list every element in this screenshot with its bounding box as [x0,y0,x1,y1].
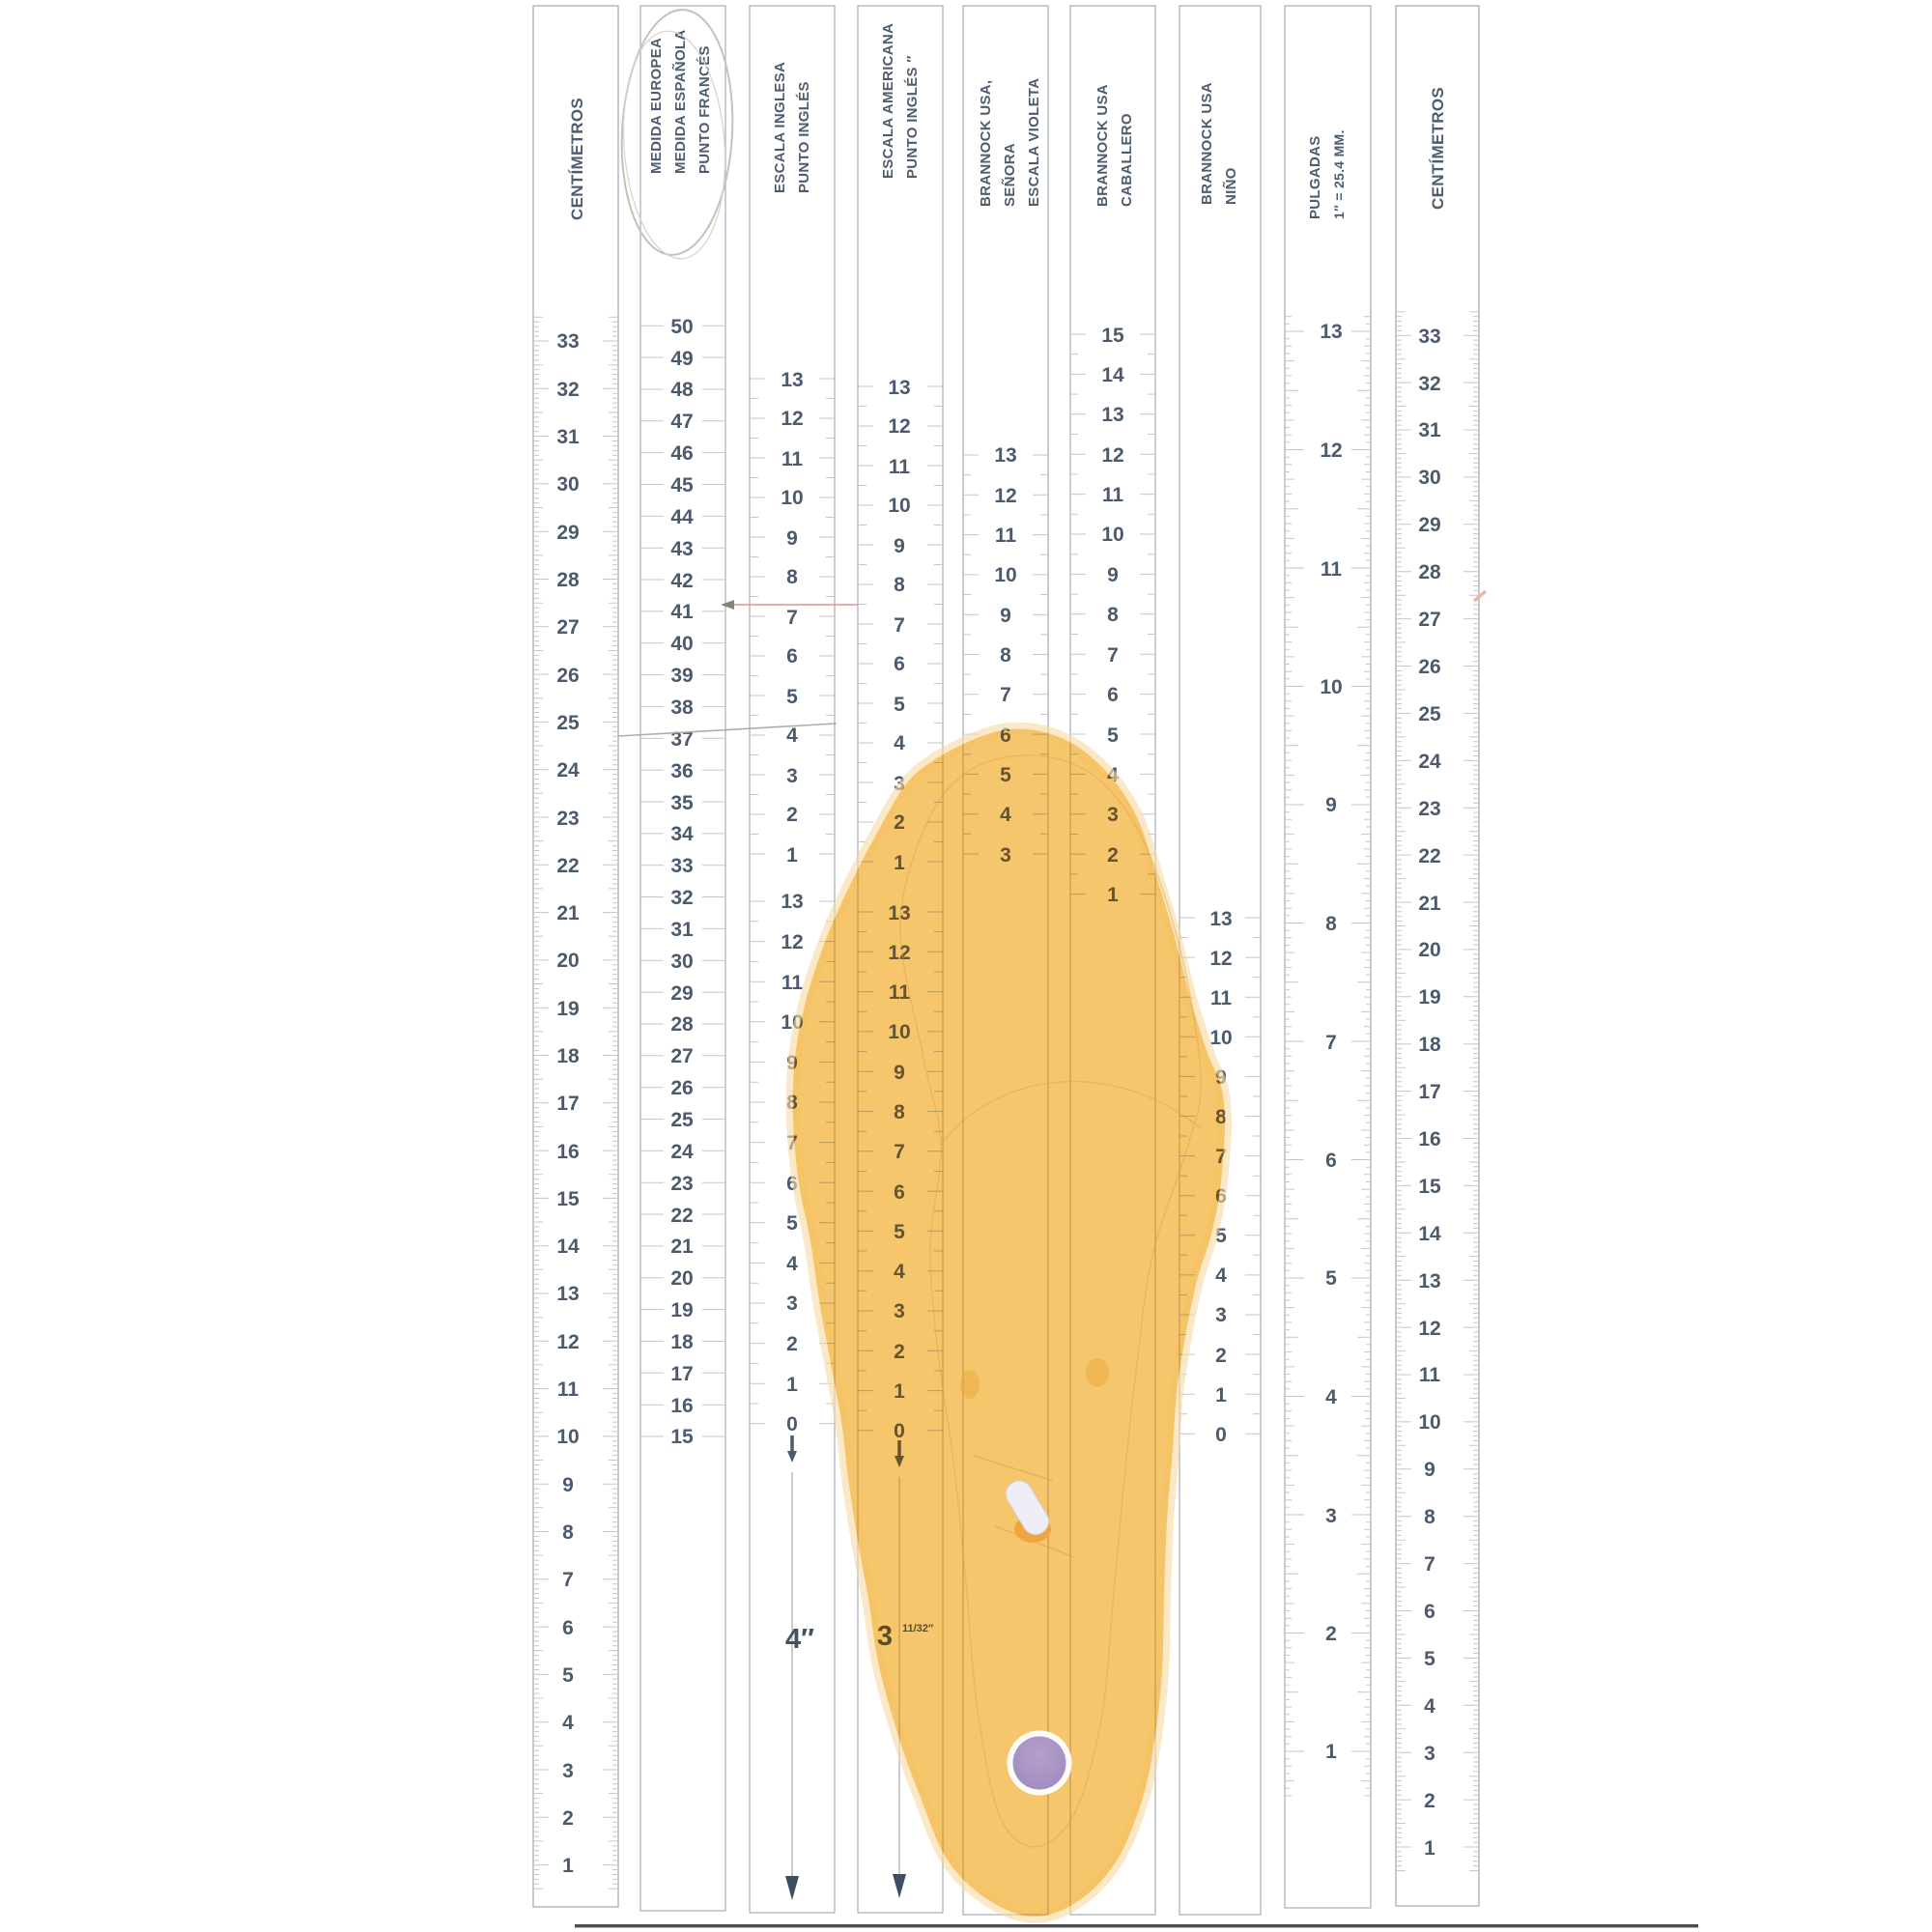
svg-text:13: 13 [556,1283,579,1305]
svg-text:6: 6 [894,1181,905,1204]
svg-text:3: 3 [1107,804,1119,826]
svg-text:21: 21 [1418,893,1441,915]
svg-text:7: 7 [786,607,798,629]
svg-text:9: 9 [1424,1459,1435,1481]
svg-text:20: 20 [1418,939,1440,961]
svg-text:2: 2 [1107,844,1119,867]
svg-text:36: 36 [670,760,693,782]
svg-text:8: 8 [1000,644,1011,667]
svg-text:2: 2 [562,1807,574,1830]
svg-text:3: 3 [786,765,798,787]
svg-text:5: 5 [562,1664,574,1687]
svg-text:29: 29 [1418,514,1440,536]
svg-text:11: 11 [889,456,911,478]
svg-text:12: 12 [781,408,803,430]
svg-text:3: 3 [786,1293,798,1315]
svg-text:9: 9 [894,535,905,557]
svg-text:CENTÍMETROS: CENTÍMETROS [568,98,586,220]
svg-text:13: 13 [1209,908,1232,930]
svg-text:10: 10 [1418,1411,1440,1434]
svg-text:11: 11 [995,525,1017,547]
svg-text:10: 10 [1320,676,1342,698]
svg-text:11: 11 [1102,484,1124,506]
svg-text:3: 3 [1215,1304,1227,1326]
svg-text:12: 12 [556,1331,579,1353]
svg-text:5: 5 [1325,1267,1337,1290]
svg-text:15: 15 [556,1188,580,1210]
svg-text:15: 15 [670,1426,694,1448]
svg-text:11: 11 [781,448,804,470]
svg-text:46: 46 [670,442,693,465]
svg-text:1: 1 [894,852,905,874]
svg-text:11: 11 [1419,1364,1441,1386]
svg-text:7: 7 [894,1141,905,1163]
svg-text:1: 1 [1325,1741,1337,1763]
svg-text:38: 38 [670,696,694,719]
svg-text:45: 45 [670,474,694,497]
svg-text:16: 16 [1418,1128,1440,1151]
svg-text:4: 4 [786,724,798,747]
svg-text:24: 24 [670,1141,694,1163]
svg-text:22: 22 [670,1205,693,1227]
svg-text:SEÑORA: SEÑORA [1001,143,1018,207]
svg-text:2: 2 [894,811,905,834]
svg-text:30: 30 [670,951,693,973]
svg-text:12: 12 [1101,444,1123,467]
svg-text:30: 30 [1418,467,1440,489]
svg-text:31: 31 [670,919,694,941]
svg-text:31: 31 [1418,419,1441,441]
svg-text:49: 49 [670,348,693,370]
svg-text:23: 23 [1418,798,1440,820]
svg-text:39: 39 [670,665,693,687]
svg-text:6: 6 [786,645,798,668]
svg-text:28: 28 [1418,561,1441,583]
svg-text:7: 7 [1325,1032,1337,1054]
svg-text:9: 9 [562,1474,574,1496]
svg-text:12: 12 [888,942,910,964]
svg-text:23: 23 [556,808,579,830]
svg-text:2: 2 [786,1333,798,1355]
svg-text:31: 31 [556,426,580,448]
svg-text:25: 25 [556,712,580,734]
svg-text:4: 4 [562,1712,574,1734]
svg-text:13: 13 [781,369,803,391]
svg-text:48: 48 [670,379,694,401]
svg-text:MEDIDA ESPAÑOLA: MEDIDA ESPAÑOLA [671,29,689,174]
svg-text:4: 4 [786,1253,798,1275]
svg-text:18: 18 [556,1045,580,1067]
svg-text:3: 3 [1000,844,1011,867]
svg-text:27: 27 [556,616,579,639]
svg-text:21: 21 [670,1236,694,1258]
svg-text:6: 6 [894,653,905,675]
svg-text:8: 8 [562,1521,574,1544]
svg-text:3: 3 [894,1300,905,1322]
svg-text:13: 13 [1101,404,1123,426]
svg-text:28: 28 [670,1013,694,1036]
svg-text:22: 22 [1418,845,1440,867]
svg-text:11: 11 [557,1378,580,1401]
svg-text:ESCALA AMERICANA: ESCALA AMERICANA [880,23,896,179]
svg-text:35: 35 [670,792,694,814]
svg-text:17: 17 [556,1093,579,1115]
svg-text:26: 26 [670,1077,693,1099]
svg-text:8: 8 [1325,913,1337,935]
svg-text:3: 3 [1325,1505,1337,1527]
svg-text:23: 23 [670,1173,693,1195]
svg-text:4: 4 [1000,804,1011,826]
svg-text:1: 1 [894,1380,905,1403]
svg-text:10: 10 [1101,524,1123,546]
svg-text:10: 10 [1209,1027,1232,1049]
svg-text:5: 5 [894,1221,905,1243]
svg-text:MEDIDA EUROPEA: MEDIDA EUROPEA [648,38,665,174]
svg-text:14: 14 [1101,364,1124,386]
svg-text:ESCALA VIOLETA: ESCALA VIOLETA [1026,78,1042,207]
svg-text:4: 4 [1215,1264,1227,1287]
svg-text:27: 27 [670,1045,693,1067]
svg-text:10: 10 [556,1426,579,1448]
svg-text:29: 29 [556,522,579,544]
svg-text:28: 28 [556,569,580,591]
svg-text:4″: 4″ [785,1624,814,1655]
svg-text:7: 7 [1424,1553,1435,1576]
svg-text:7: 7 [894,614,905,637]
svg-text:2: 2 [786,804,798,826]
svg-text:20: 20 [670,1267,693,1290]
svg-text:5: 5 [1424,1648,1435,1670]
svg-text:3: 3 [1424,1743,1435,1765]
svg-text:PUNTO INGLÉS ″: PUNTO INGLÉS ″ [904,55,921,179]
svg-text:27: 27 [1418,609,1440,631]
svg-text:5: 5 [786,686,798,708]
svg-text:1: 1 [562,1855,574,1877]
svg-text:6: 6 [1107,684,1119,706]
svg-text:20: 20 [556,950,579,972]
svg-text:CENTÍMETROS: CENTÍMETROS [1429,87,1447,210]
svg-text:CABALLERO: CABALLERO [1119,113,1135,207]
svg-text:10: 10 [888,495,910,517]
svg-text:4: 4 [1325,1386,1337,1408]
svg-text:8: 8 [1424,1506,1435,1528]
svg-text:2: 2 [1424,1790,1435,1812]
svg-text:BRANNOCK USA: BRANNOCK USA [1094,84,1111,207]
svg-text:12: 12 [888,415,910,438]
svg-text:7: 7 [1000,684,1011,706]
svg-text:30: 30 [556,473,579,496]
svg-text:4: 4 [894,1261,905,1283]
svg-text:44: 44 [670,506,694,528]
svg-text:8: 8 [894,574,905,596]
svg-text:0: 0 [786,1413,798,1435]
svg-text:18: 18 [1418,1034,1441,1056]
svg-text:13: 13 [1418,1270,1440,1293]
svg-text:6: 6 [562,1617,574,1639]
svg-text:9: 9 [1325,794,1337,816]
svg-text:11: 11 [781,972,804,994]
svg-text:21: 21 [556,902,580,924]
svg-text:34: 34 [670,823,694,845]
svg-text:1: 1 [1215,1384,1227,1406]
svg-text:32: 32 [556,379,579,401]
svg-text:12: 12 [1418,1318,1440,1340]
svg-text:14: 14 [556,1236,580,1258]
svg-text:10: 10 [781,487,803,509]
svg-text:18: 18 [670,1331,694,1353]
svg-text:33: 33 [1418,326,1440,348]
svg-text:9: 9 [1000,605,1011,627]
svg-text:2: 2 [1215,1345,1227,1367]
svg-text:5: 5 [1107,724,1119,747]
svg-text:29: 29 [670,982,693,1005]
svg-text:NIÑO: NIÑO [1222,167,1239,205]
svg-text:17: 17 [670,1363,693,1385]
svg-text:0: 0 [1215,1424,1227,1446]
svg-text:8: 8 [894,1101,905,1123]
svg-text:5: 5 [1000,764,1011,786]
svg-text:12: 12 [1209,948,1232,970]
svg-text:13: 13 [994,444,1016,467]
svg-text:3: 3 [562,1760,574,1782]
svg-text:10: 10 [888,1021,910,1043]
svg-text:9: 9 [786,527,798,550]
svg-text:13: 13 [1320,321,1342,343]
svg-text:11: 11 [1210,987,1233,1009]
svg-text:41: 41 [670,601,694,623]
svg-text:ESCALA INGLESA: ESCALA INGLESA [772,62,788,193]
svg-text:14: 14 [1418,1223,1441,1245]
svg-text:6: 6 [1325,1150,1337,1172]
svg-text:25: 25 [1418,703,1441,725]
svg-text:25: 25 [670,1109,694,1131]
svg-text:13: 13 [888,902,910,924]
svg-text:24: 24 [556,759,580,781]
svg-text:17: 17 [1418,1081,1440,1103]
svg-text:PUNTO INGLÉS: PUNTO INGLÉS [796,81,812,193]
svg-text:12: 12 [781,931,803,953]
svg-text:1: 1 [786,844,798,867]
svg-text:7: 7 [1107,644,1119,667]
svg-text:BRANNOCK USA: BRANNOCK USA [1199,82,1215,205]
svg-text:11/32″: 11/32″ [902,1623,934,1634]
svg-text:11: 11 [1321,558,1343,581]
svg-text:2: 2 [1325,1623,1337,1645]
svg-text:16: 16 [670,1395,693,1417]
svg-text:1: 1 [1107,884,1119,906]
svg-text:0: 0 [894,1420,905,1442]
svg-text:2: 2 [894,1341,905,1363]
svg-text:10: 10 [994,564,1016,586]
svg-text:13: 13 [888,377,910,399]
svg-text:47: 47 [670,411,693,433]
svg-text:3: 3 [877,1621,893,1652]
svg-text:32: 32 [670,887,693,909]
svg-text:19: 19 [1418,986,1440,1009]
svg-text:19: 19 [670,1299,693,1321]
svg-text:1: 1 [786,1374,798,1396]
svg-text:26: 26 [556,665,579,687]
svg-text:13: 13 [781,891,803,913]
svg-text:5: 5 [894,694,905,716]
svg-text:6: 6 [1424,1601,1435,1623]
svg-text:1: 1 [1424,1837,1435,1860]
svg-text:PUNTO FRANCÉS: PUNTO FRANCÉS [696,45,713,174]
svg-text:43: 43 [670,538,693,560]
svg-text:16: 16 [556,1141,579,1163]
svg-text:26: 26 [1418,656,1440,678]
svg-text:12: 12 [994,485,1016,507]
svg-text:BRANNOCK USA,: BRANNOCK USA, [978,80,994,207]
svg-text:32: 32 [1418,373,1440,395]
svg-text:22: 22 [556,855,579,877]
svg-text:7: 7 [562,1569,574,1591]
svg-text:PULGADAS: PULGADAS [1307,135,1323,219]
svg-text:9: 9 [894,1062,905,1084]
svg-text:40: 40 [670,633,693,655]
svg-text:5: 5 [786,1212,798,1235]
svg-text:4: 4 [894,732,905,754]
svg-text:50: 50 [670,316,693,338]
svg-text:42: 42 [670,570,693,592]
svg-text:4: 4 [1424,1695,1435,1718]
svg-text:33: 33 [670,855,693,877]
svg-text:12: 12 [1320,440,1342,462]
svg-text:15: 15 [1101,325,1124,347]
svg-text:24: 24 [1418,751,1441,773]
svg-text:15: 15 [1418,1176,1441,1198]
svg-text:1″ = 25.4 MM.: 1″ = 25.4 MM. [1331,129,1347,219]
svg-text:9: 9 [1107,564,1119,586]
svg-text:19: 19 [556,998,579,1020]
svg-text:8: 8 [1107,604,1119,626]
svg-text:33: 33 [556,330,579,353]
svg-text:8: 8 [786,566,798,588]
